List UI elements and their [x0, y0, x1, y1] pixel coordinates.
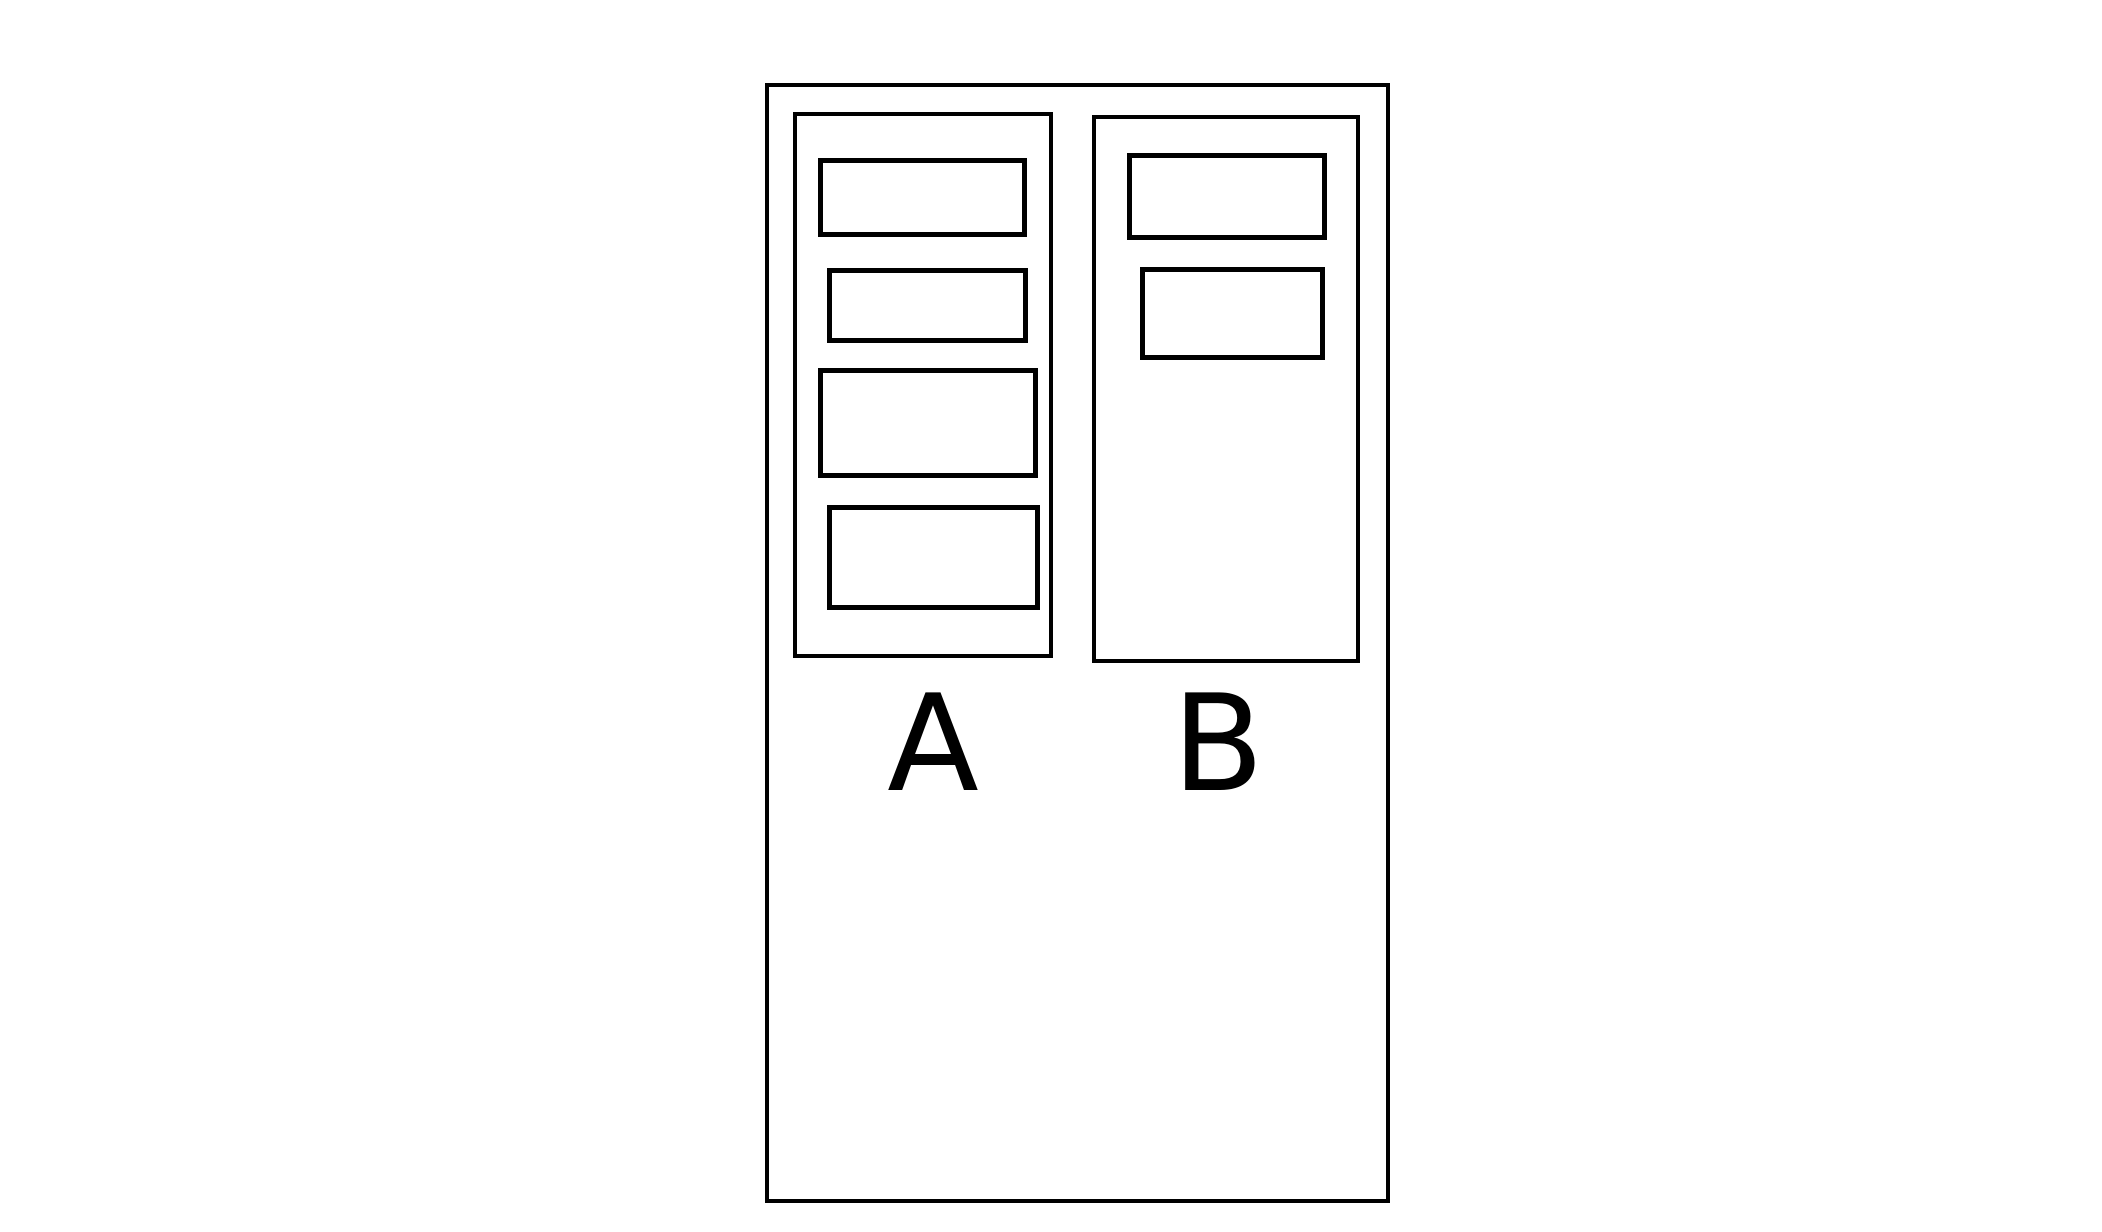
group-a-slot-4 — [827, 505, 1040, 610]
group-a-slot-2 — [827, 268, 1028, 343]
diagram-canvas: A B — [0, 0, 2102, 1232]
group-a-slot-1 — [818, 158, 1027, 237]
group-b-slot-2 — [1140, 267, 1325, 360]
group-a-slot-3 — [818, 368, 1038, 478]
group-b-slot-1 — [1127, 153, 1327, 240]
group-b-label: B — [1172, 677, 1264, 811]
group-a-label: A — [887, 677, 979, 811]
